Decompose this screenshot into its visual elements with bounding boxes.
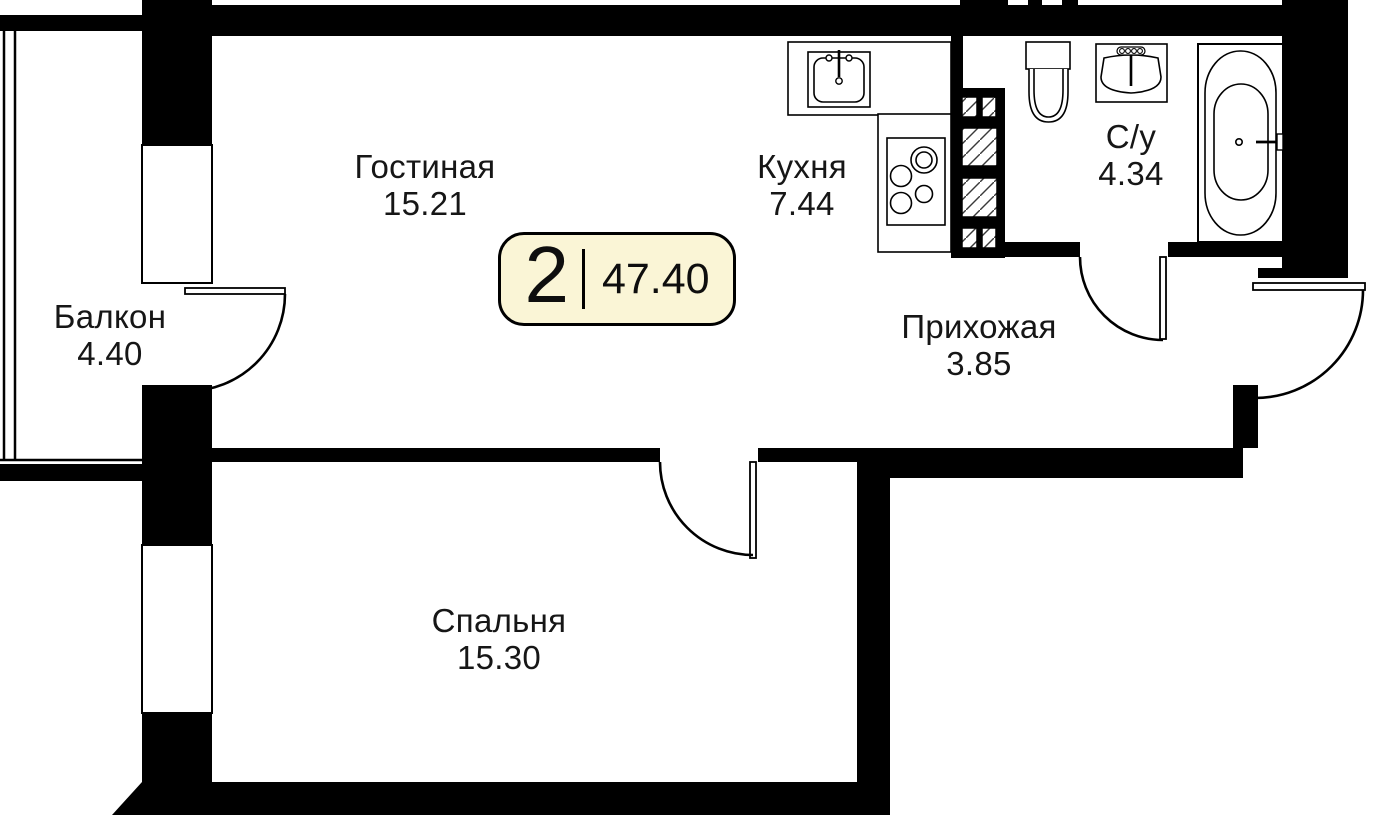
room-name: Спальня <box>432 602 567 639</box>
room-label-bathroom: С/у 4.34 <box>1098 118 1163 192</box>
balcony-door <box>185 288 285 391</box>
toilet-icon <box>1026 42 1070 122</box>
bedroom-door-leaf <box>750 462 756 558</box>
shaft-duct-large-1 <box>962 128 997 166</box>
room-name: С/у <box>1098 118 1163 155</box>
room-area: 15.21 <box>355 185 496 222</box>
floor-plan: Гостиная 15.21 Кухня 7.44 С/у 4.34 Прихо… <box>0 0 1391 815</box>
room-name: Балкон <box>54 298 166 335</box>
wall-top-stub-2 <box>1028 0 1042 6</box>
wall-entry-lintel <box>1258 268 1348 278</box>
rooms-count: 2 <box>524 235 569 315</box>
room-area: 4.34 <box>1098 155 1163 192</box>
room-label-kitchen: Кухня 7.44 <box>757 148 847 222</box>
window-bedroom-west <box>142 545 212 713</box>
shaft-duct-small-3 <box>962 228 977 248</box>
room-area: 4.40 <box>54 335 166 372</box>
wall-top-stub-1 <box>960 0 1008 6</box>
burner-3 <box>891 193 912 214</box>
washbasin-tap-dot-4 <box>1138 49 1143 54</box>
shaft-block <box>951 88 1005 258</box>
shaft-duct-small-4 <box>982 228 996 248</box>
balcony-door-arc <box>188 294 285 391</box>
total-area: 47.40 <box>602 258 710 301</box>
washbasin-tap-dot-1 <box>1120 49 1125 54</box>
wall-bedroom-hall <box>857 448 890 815</box>
wall-west-upper <box>142 0 212 145</box>
wall-living-bedroom-left <box>142 448 660 462</box>
wall-east <box>1282 0 1348 268</box>
room-label-bedroom: Спальня 15.30 <box>432 602 567 676</box>
summary-badge: 2 47.40 <box>498 232 736 326</box>
wall-top-main <box>142 5 1348 36</box>
bathroom-door <box>1080 257 1166 340</box>
bathtub-icon <box>1198 44 1283 242</box>
room-name: Гостиная <box>355 148 496 185</box>
wall-balcony-top <box>0 15 142 31</box>
entry-door-arc <box>1255 290 1363 398</box>
room-area: 3.85 <box>901 345 1056 382</box>
washbasin-tap-dot-2 <box>1126 49 1131 54</box>
toilet-tank <box>1026 42 1070 69</box>
window-living-west <box>142 145 212 283</box>
bathroom-door-arc <box>1080 257 1163 340</box>
balcony-door-leaf <box>185 288 285 294</box>
wall-bottom <box>142 782 890 815</box>
bathtub-drain <box>1236 139 1242 145</box>
kitchen-sink-tap-left <box>826 55 832 61</box>
shaft-duct-large-2 <box>962 178 997 217</box>
ventilation-shaft-icon <box>951 88 1005 258</box>
burner-4 <box>916 186 933 203</box>
doors <box>185 257 1365 558</box>
room-area: 7.44 <box>757 185 847 222</box>
burner-1-inner <box>916 152 932 168</box>
burner-2 <box>891 166 912 187</box>
bathroom-door-leaf <box>1160 257 1166 339</box>
shaft-duct-small-2 <box>982 97 996 117</box>
wall-hall-bottom <box>890 448 1243 478</box>
wall-bath-bottom-left <box>1005 242 1080 257</box>
wall-bath-bottom-right <box>1168 242 1283 257</box>
washbasin-icon <box>1096 44 1167 102</box>
wall-west-lower <box>142 713 212 785</box>
room-label-balcony: Балкон 4.40 <box>54 298 166 372</box>
room-name: Прихожая <box>901 308 1056 345</box>
wall-bottom-chamfer <box>112 782 142 815</box>
wall-entry-stub <box>1233 385 1258 448</box>
badge-divider <box>582 249 585 309</box>
room-label-living: Гостиная 15.21 <box>355 148 496 222</box>
entry-door-leaf <box>1253 283 1365 290</box>
kitchen-sink-tap-right <box>846 55 852 61</box>
bedroom-door-arc <box>660 462 753 555</box>
room-label-hallway: Прихожая 3.85 <box>901 308 1056 382</box>
room-name: Кухня <box>757 148 847 185</box>
wall-top-stub-3 <box>1062 0 1078 6</box>
wall-west-mid <box>142 385 212 545</box>
room-area: 15.30 <box>432 639 567 676</box>
kitchen-sink-icon <box>808 50 870 107</box>
shaft-duct-small-1 <box>962 97 977 117</box>
floor-plan-drawing <box>0 0 1391 815</box>
bathtub-mixer <box>1277 134 1283 150</box>
wall-living-bedroom-right <box>758 448 860 462</box>
entry-door <box>1253 283 1365 398</box>
kitchen-sink-spout-end <box>836 78 842 84</box>
washbasin-tap-dot-3 <box>1132 49 1137 54</box>
cooktop-icon <box>887 138 945 225</box>
bedroom-door <box>660 462 756 558</box>
